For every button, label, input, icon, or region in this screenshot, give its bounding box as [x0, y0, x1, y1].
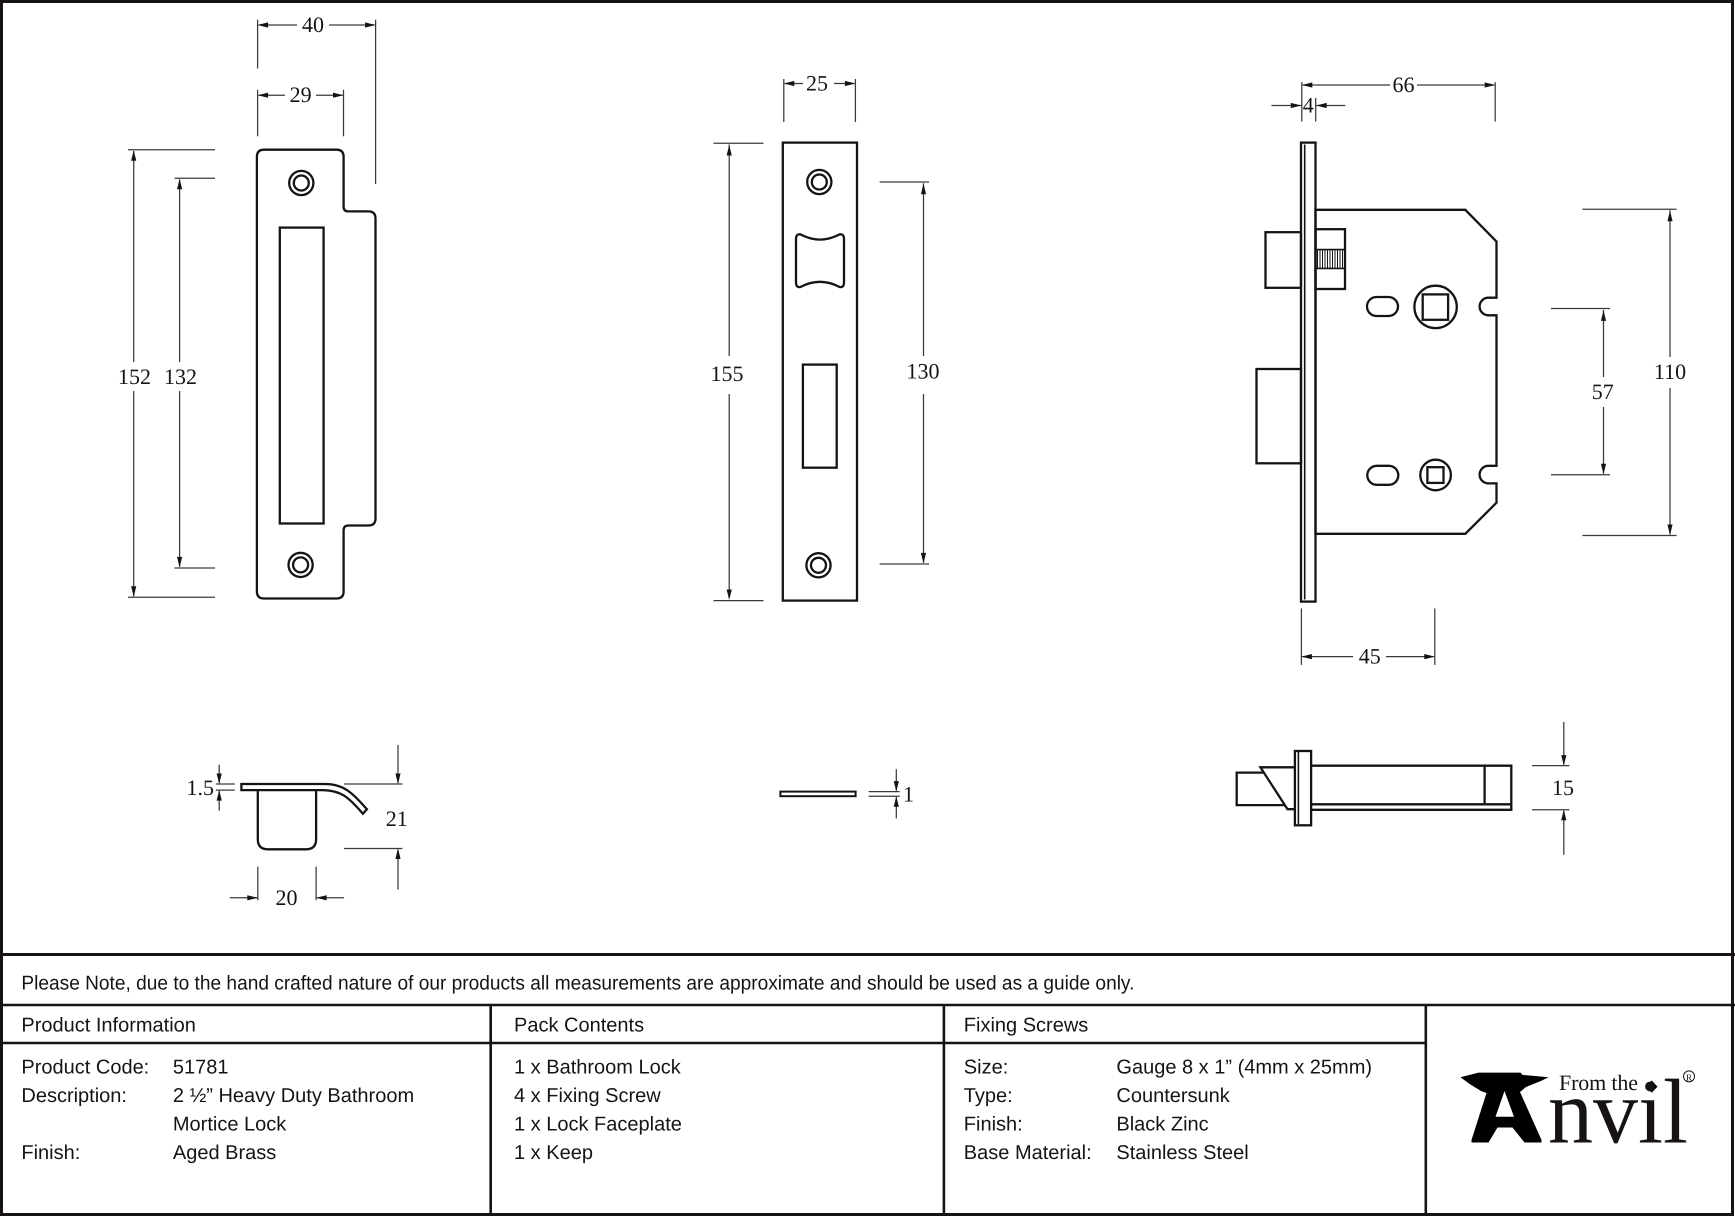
- svg-text:57: 57: [1592, 379, 1614, 404]
- svg-text:21: 21: [386, 806, 408, 831]
- svg-text:29: 29: [290, 82, 312, 107]
- svg-text:Pack Contents: Pack Contents: [514, 1015, 644, 1037]
- svg-text:Mortice Lock: Mortice Lock: [173, 1114, 287, 1136]
- svg-text:Black Zinc: Black Zinc: [1116, 1114, 1208, 1136]
- svg-text:20: 20: [276, 885, 298, 910]
- svg-text:Product Code:: Product Code:: [21, 1056, 149, 1078]
- svg-text:45: 45: [1359, 644, 1381, 669]
- svg-text:Aged Brass: Aged Brass: [173, 1142, 276, 1164]
- svg-text:Fixing Screws: Fixing Screws: [964, 1015, 1088, 1037]
- svg-text:25: 25: [806, 71, 828, 96]
- svg-text:1: 1: [903, 782, 914, 807]
- svg-text:nvil: nvil: [1548, 1061, 1688, 1163]
- svg-text:1 x Bathroom Lock: 1 x Bathroom Lock: [514, 1056, 682, 1078]
- svg-text:R: R: [1686, 1072, 1692, 1082]
- svg-text:4: 4: [1303, 93, 1314, 118]
- svg-text:132: 132: [164, 364, 197, 389]
- svg-text:1 x Keep: 1 x Keep: [514, 1142, 593, 1164]
- svg-text:Type:: Type:: [964, 1085, 1013, 1107]
- svg-text:Countersunk: Countersunk: [1116, 1085, 1230, 1107]
- svg-text:Stainless Steel: Stainless Steel: [1116, 1142, 1248, 1164]
- svg-text:40: 40: [302, 12, 324, 37]
- svg-text:Finish:: Finish:: [21, 1142, 80, 1164]
- svg-text:1.5: 1.5: [187, 775, 215, 800]
- svg-text:2 ½” Heavy Duty Bathroom: 2 ½” Heavy Duty Bathroom: [173, 1085, 414, 1107]
- svg-text:51781: 51781: [173, 1056, 229, 1078]
- svg-text:130: 130: [907, 359, 940, 384]
- svg-text:152: 152: [118, 364, 151, 389]
- svg-text:Please Note, due to the hand c: Please Note, due to the hand crafted nat…: [21, 972, 1134, 994]
- svg-text:1 x Lock Faceplate: 1 x Lock Faceplate: [514, 1114, 682, 1136]
- svg-text:Base Material:: Base Material:: [964, 1142, 1092, 1164]
- svg-text:66: 66: [1393, 72, 1415, 97]
- svg-text:Product Information: Product Information: [21, 1015, 196, 1037]
- svg-text:Size:: Size:: [964, 1056, 1008, 1078]
- svg-text:Finish:: Finish:: [964, 1114, 1023, 1136]
- svg-text:155: 155: [711, 361, 744, 386]
- svg-text:Description:: Description:: [21, 1085, 127, 1107]
- svg-text:Gauge 8 x 1” (4mm x 25mm): Gauge 8 x 1” (4mm x 25mm): [1116, 1056, 1372, 1078]
- svg-text:4 x Fixing Screw: 4 x Fixing Screw: [514, 1085, 661, 1107]
- svg-text:110: 110: [1654, 359, 1686, 384]
- svg-text:15: 15: [1552, 775, 1574, 800]
